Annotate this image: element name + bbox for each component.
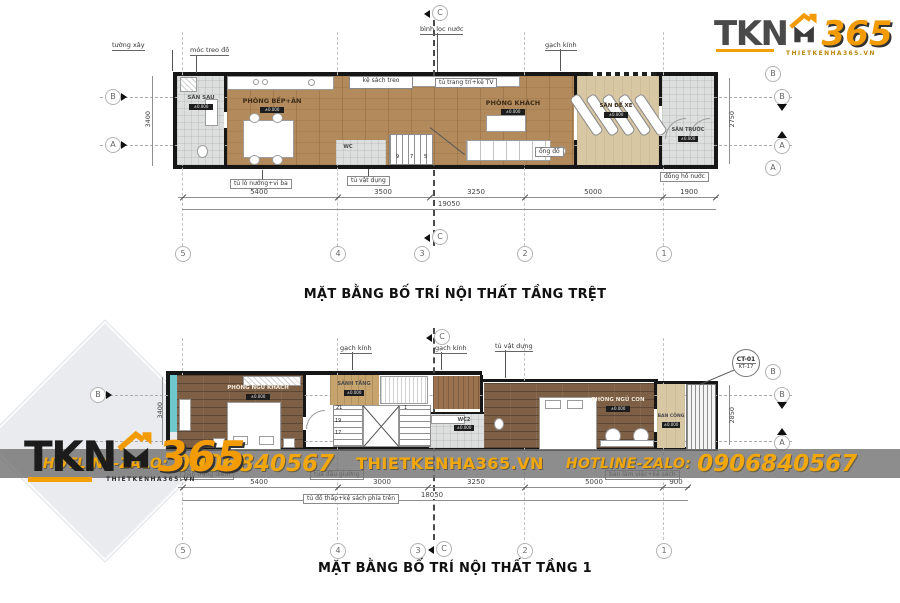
room-label-wc2: WC2 <box>458 418 471 423</box>
wall-segment <box>303 371 306 417</box>
stove-burner <box>262 79 268 85</box>
stair-flight <box>333 405 363 447</box>
grid-bubble-b-right: B <box>765 364 781 380</box>
section-arrow <box>424 234 430 242</box>
room-label-ngu-khach: PHÒNG NGỦ KHÁCH <box>227 386 289 392</box>
section-bubble-c: C <box>436 541 452 557</box>
grid-bubble-5: 5 <box>175 543 191 559</box>
dim-text: 5400 <box>248 189 270 196</box>
note-tu-vat-dung-2: tủ vật dụng <box>495 343 533 352</box>
chair <box>272 155 283 165</box>
dim-line <box>178 487 690 488</box>
dim-text: 3000 <box>371 479 393 486</box>
room-label-de-xe: SÂN ĐỂ XE <box>599 104 632 110</box>
room-label-wc: WC <box>343 145 352 150</box>
level-marker: ±0.000 <box>260 107 284 113</box>
section-bubble-c: C <box>434 329 450 345</box>
chair <box>249 155 260 165</box>
leader-line <box>437 33 438 72</box>
grid-bubble-1: 1 <box>656 246 672 262</box>
grid-bubble-4: 4 <box>330 246 346 262</box>
dressing-table <box>179 399 191 431</box>
dim-tick <box>713 194 719 200</box>
note-dong-ho: đồng hồ nước <box>660 172 709 182</box>
grid-bubble-b-arrow: B <box>774 387 790 403</box>
grid-bubble-b-arrow: B <box>774 89 790 105</box>
level-marker: ±0.000 <box>606 406 630 412</box>
note-ke-sach: kệ sách treo <box>349 76 413 89</box>
kitchen-counter <box>227 76 334 90</box>
stair-number: 21 <box>336 406 342 411</box>
dim-line-left <box>152 76 153 166</box>
leader-line <box>441 352 442 370</box>
logo-365-text: 365 <box>822 21 893 48</box>
desk <box>600 440 654 447</box>
dim-line-total <box>182 209 716 210</box>
room-label-bep-an: PHÒNG BẾP+ĂN <box>243 98 302 105</box>
section-arrow <box>424 10 430 18</box>
grid-bubble-b-right: B <box>765 66 781 82</box>
wall-segment <box>173 165 718 169</box>
logo-underline <box>716 49 774 52</box>
plan2-title: MẶT BẰNG BỐ TRÍ NỘI THẤT TẦNG 1 <box>205 561 705 576</box>
leader-line <box>560 49 561 71</box>
dim-text: 5000 <box>582 189 604 196</box>
chair <box>249 113 260 123</box>
section-bubble-c: C <box>432 229 448 245</box>
note-moc-treo: móc treo đồ <box>190 47 229 56</box>
house-icon <box>789 12 821 48</box>
closet <box>380 376 428 404</box>
grid-bubble-a-arrow: A <box>774 138 790 154</box>
stair-number: 19 <box>335 419 341 424</box>
banner-website: THIETKENHA365.VN <box>356 454 544 473</box>
dim-text-right: 2750 <box>729 104 736 134</box>
pillow <box>567 400 583 409</box>
wall-segment <box>480 375 483 413</box>
grid-arrow <box>777 131 787 138</box>
stair-number: 1 <box>404 406 407 411</box>
note-binh-loc: bình lọc nước <box>420 26 463 35</box>
pillow <box>545 400 561 409</box>
leader-line <box>368 169 369 176</box>
grid-bubble-b-left: B <box>90 387 106 403</box>
louver-screen <box>686 384 716 450</box>
level-marker: ±0.000 <box>189 104 213 110</box>
stair-flight <box>399 405 431 447</box>
level-marker: ±0.000 <box>501 109 525 115</box>
drawing-sheet: 9 7 5 SÂN SAU ±0.000 PHÒNG BẾP+ĂN ±0.000… <box>0 0 900 603</box>
note-gach-kinh: gạch kính <box>545 42 577 51</box>
stair-number: 5 <box>424 155 427 160</box>
dim-text-left: 3400 <box>145 104 152 134</box>
logo-underline <box>28 477 92 482</box>
grid-bubble-2: 2 <box>517 246 533 262</box>
grid-bubble-b-left: B <box>105 89 121 105</box>
dim-text-total: 19050 <box>436 201 462 208</box>
chair <box>272 113 283 123</box>
section-arrow <box>428 546 434 554</box>
note-tu-vat-dung: tủ vật dụng <box>347 176 390 186</box>
grid-bubble-a-right: A <box>765 160 781 176</box>
room-label-san-sau: SÂN SAU <box>187 96 214 102</box>
callout-code: CT-01 <box>737 356 755 363</box>
dining-table <box>243 120 294 158</box>
grid-arrow <box>121 93 127 101</box>
note-gach-kinh-2: gạch kính <box>435 345 467 354</box>
dim-text-left: 3400 <box>157 395 164 425</box>
grid-arrow <box>777 402 787 409</box>
stove-burner <box>253 79 259 85</box>
dim-line <box>178 197 718 198</box>
dim-text-right: 2850 <box>729 400 736 430</box>
callout-sheet: KT-17 <box>736 363 755 371</box>
grid-arrow <box>777 428 787 435</box>
logo-website: THIETKENHA365.VN <box>786 51 876 57</box>
note-gach-kinh-1: gạch kính <box>340 345 372 354</box>
dim-line-total <box>182 500 688 501</box>
dim-text-total: 18050 <box>419 492 445 499</box>
toilet <box>494 418 504 430</box>
grid-bubble-5: 5 <box>175 246 191 262</box>
wall-segment <box>714 72 718 169</box>
wall-segment <box>480 379 658 382</box>
dim-text: 3250 <box>465 479 487 486</box>
dim-tick <box>685 484 691 490</box>
leader-line <box>196 55 197 73</box>
dim-text: 1900 <box>678 189 700 196</box>
dim-text: 3500 <box>372 189 394 196</box>
note-tu-lo: tủ lò nướng+vi ba <box>230 179 292 189</box>
skylight-strip <box>170 375 177 432</box>
grid-bubble-a-left: A <box>105 137 121 153</box>
level-marker: ±0.000 <box>678 136 698 142</box>
leader-line <box>262 170 263 179</box>
stairs-plan1 <box>389 134 433 165</box>
grid-arrow <box>121 141 127 149</box>
grid-bubble-4: 4 <box>330 543 346 559</box>
room-label-ban-cong: BAN CÔNG <box>658 415 685 420</box>
level-marker: ±0.000 <box>344 390 364 396</box>
house-icon <box>117 430 157 474</box>
note-ong-do: ống đổ <box>535 147 564 157</box>
grid-bubble-3: 3 <box>410 543 426 559</box>
section-arrow <box>426 334 432 342</box>
logo-365-text: 365 <box>158 440 246 474</box>
hotline-label-2: HOTLINE-ZALO: <box>566 456 691 472</box>
note-tuong-xay: tường xây <box>112 42 145 51</box>
room-label-khach: PHÒNG KHÁCH <box>486 100 541 107</box>
dim-text: 900 <box>667 479 684 486</box>
grid-arrow <box>777 104 787 111</box>
grid-arrow <box>106 391 112 399</box>
glass-brick-band <box>588 72 656 76</box>
section-bubble-c: C <box>432 5 448 21</box>
grid-bubble-1: 1 <box>656 543 672 559</box>
wardrobe <box>180 77 197 92</box>
level-marker: ±0.000 <box>454 425 474 431</box>
brand-logo-top-right: TKN 365 <box>714 12 892 48</box>
dim-text: 5000 <box>583 479 605 486</box>
kitchen-sink <box>308 79 315 86</box>
toilet <box>197 145 208 158</box>
coffee-table <box>486 115 526 132</box>
level-marker: ±0.000 <box>662 422 680 428</box>
leader-line <box>352 352 353 370</box>
note-tu-tv: tủ trang trí+kệ TV <box>435 78 497 88</box>
logo-tkn-text: TKN <box>24 440 116 474</box>
plan1-title: MẶT BẰNG BỐ TRÍ NỘI THẤT TẦNG TRỆT <box>205 287 705 302</box>
note-tu-do-thap: tủ đồ thấp+kệ sách phía trên <box>303 494 399 504</box>
stair-number: 7 <box>410 155 413 160</box>
leader-line <box>505 350 506 378</box>
logo-tkn-text: TKN <box>714 21 788 48</box>
logo-website: THIETKENHA365.VN <box>106 477 196 483</box>
dim-text: 3250 <box>465 189 487 196</box>
level-marker: ±0.000 <box>246 394 270 400</box>
callout-ct01: CT-01 KT-17 <box>732 349 760 377</box>
wardrobe-block <box>433 376 480 409</box>
dim-text: 5400 <box>248 479 270 486</box>
brand-logo-watermark: TKN 365 <box>24 430 246 474</box>
pillow <box>259 436 274 445</box>
room-label-sanh: SẢNH TẦNG <box>337 382 370 387</box>
grid-bubble-3: 3 <box>414 246 430 262</box>
nightstand <box>283 438 295 448</box>
grid-bubble-2: 2 <box>517 543 533 559</box>
door-swing <box>306 410 325 429</box>
room-label-ngu-con: PHÒNG NGỦ CON <box>591 398 644 404</box>
stair-number: 17 <box>335 431 341 436</box>
level-marker: ±0.000 <box>604 112 628 118</box>
room-label-san-truoc: SÂN TRƯỚC <box>672 128 705 133</box>
hotline-phone-2: 0906840567 <box>697 451 857 477</box>
stair-number: 9 <box>396 155 399 160</box>
leader-line <box>172 50 173 71</box>
